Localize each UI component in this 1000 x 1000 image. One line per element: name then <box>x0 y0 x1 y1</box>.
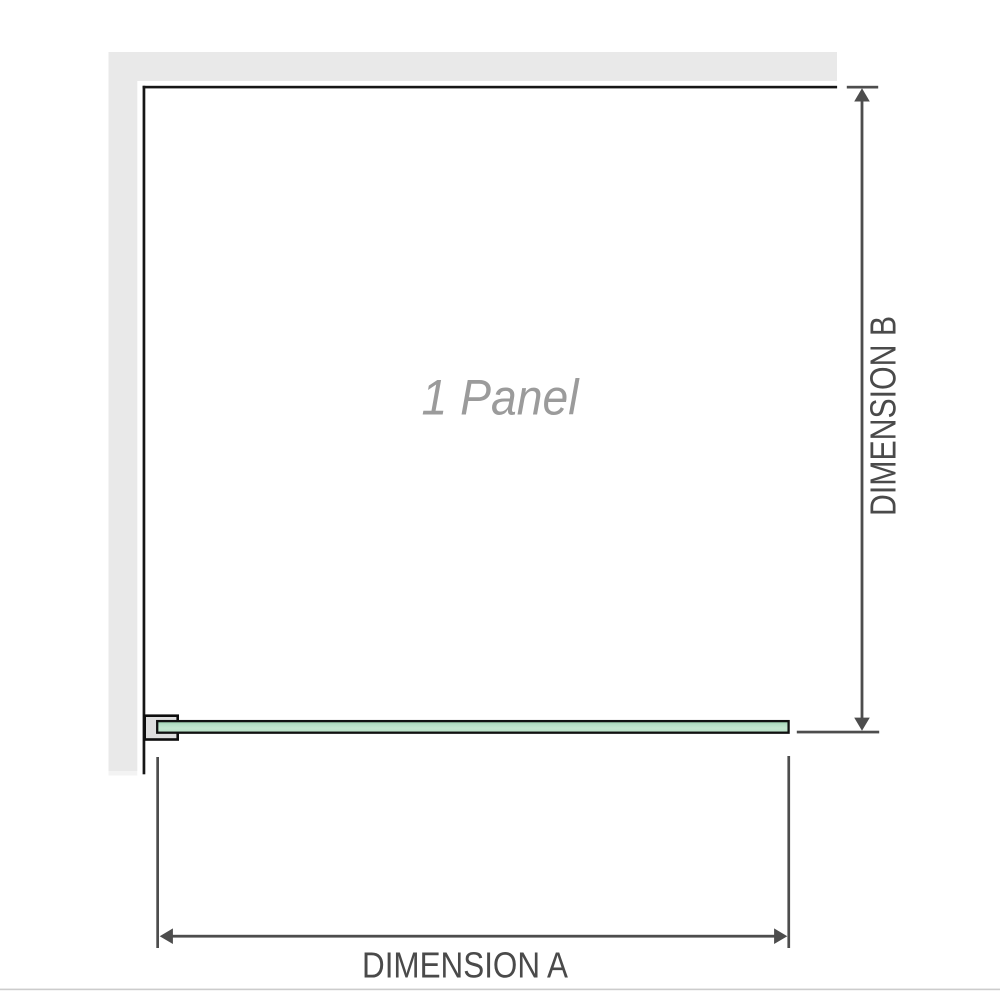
svg-text:1 Panel: 1 Panel <box>422 370 581 426</box>
svg-text:DIMENSION B: DIMENSION B <box>863 316 904 516</box>
svg-text:DIMENSION A: DIMENSION A <box>362 945 568 986</box>
